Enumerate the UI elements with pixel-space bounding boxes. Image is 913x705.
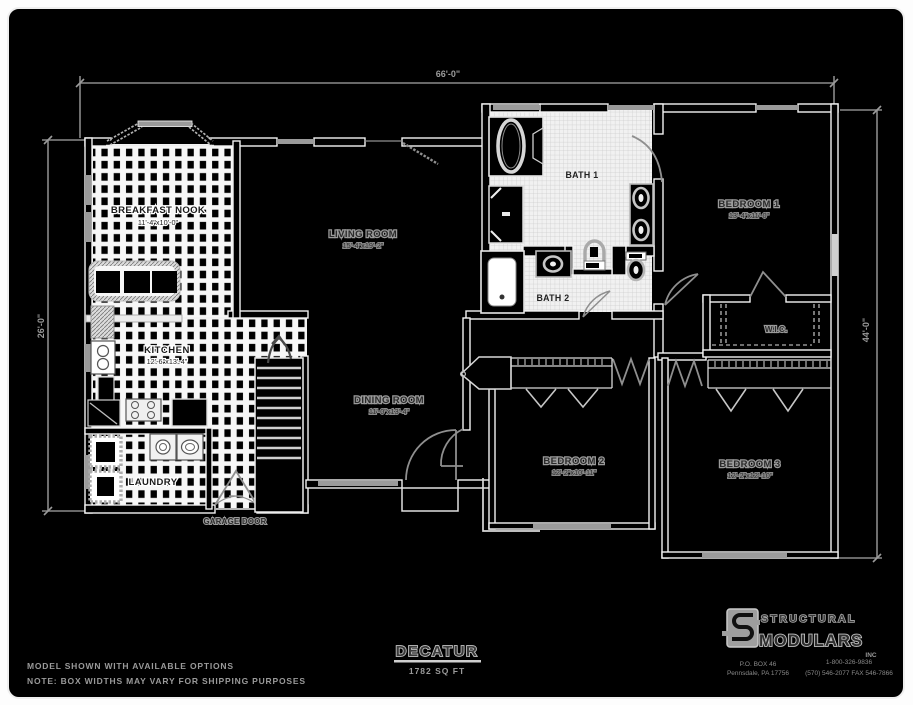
svg-text:INC: INC (865, 652, 877, 659)
svg-text:STRUCTURAL: STRUCTURAL (761, 613, 857, 625)
svg-text:MODULARS: MODULARS (759, 632, 863, 650)
svg-text:BEDROOM 2: BEDROOM 2 (543, 456, 604, 467)
svg-text:12'-2"x12'-10": 12'-2"x12'-10" (728, 471, 773, 480)
svg-text:BEDROOM 1: BEDROOM 1 (718, 199, 779, 210)
svg-text:P.O. BOX 46: P.O. BOX 46 (740, 661, 777, 668)
svg-text:DECATUR: DECATUR (396, 643, 479, 660)
svg-text:1-800-326-9836: 1-800-326-9836 (826, 659, 873, 666)
svg-text:44'-0": 44'-0" (861, 318, 871, 342)
svg-text:12'-6"x13'-4": 12'-6"x13'-4" (147, 357, 188, 366)
svg-text:NOTE: BOX WIDTHS MAY VARY FOR: NOTE: BOX WIDTHS MAY VARY FOR SHIPPING P… (27, 676, 306, 686)
svg-text:LAUNDRY: LAUNDRY (129, 477, 178, 488)
svg-text:11'-0"x13'-4": 11'-0"x13'-4" (369, 407, 410, 416)
svg-text:1782 SQ FT: 1782 SQ FT (409, 666, 465, 676)
svg-text:DINING ROOM: DINING ROOM (354, 395, 424, 406)
svg-text:12'-2"x10'-11": 12'-2"x10'-11" (552, 468, 597, 477)
svg-text:(570) 546-2077 FAX 546-7866: (570) 546-2077 FAX 546-7866 (805, 670, 893, 677)
svg-text:BREAKFAST NOOK: BREAKFAST NOOK (111, 205, 205, 216)
svg-text:13'-4"x11'-0": 13'-4"x11'-0" (729, 211, 770, 220)
svg-text:W.I.C.: W.I.C. (765, 325, 787, 334)
svg-text:MODEL SHOWN WITH AVAILABLE OPT: MODEL SHOWN WITH AVAILABLE OPTIONS (27, 661, 234, 671)
svg-text:BEDROOM 3: BEDROOM 3 (719, 459, 780, 470)
svg-text:GARAGE DOOR: GARAGE DOOR (203, 517, 266, 526)
svg-text:Pennsdale, PA 17756: Pennsdale, PA 17756 (727, 670, 789, 677)
svg-text:KITCHEN: KITCHEN (144, 345, 190, 356)
svg-text:BATH 2: BATH 2 (537, 293, 570, 303)
svg-text:11'-4"x10'-0": 11'-4"x10'-0" (138, 218, 179, 227)
svg-text:LIVING ROOM: LIVING ROOM (329, 229, 397, 240)
svg-text:26'-0": 26'-0" (36, 314, 46, 338)
svg-text:BATH 1: BATH 1 (566, 170, 599, 180)
svg-text:66'-0": 66'-0" (436, 69, 460, 79)
svg-text:15'-4"x19'-2": 15'-4"x19'-2" (343, 241, 384, 250)
